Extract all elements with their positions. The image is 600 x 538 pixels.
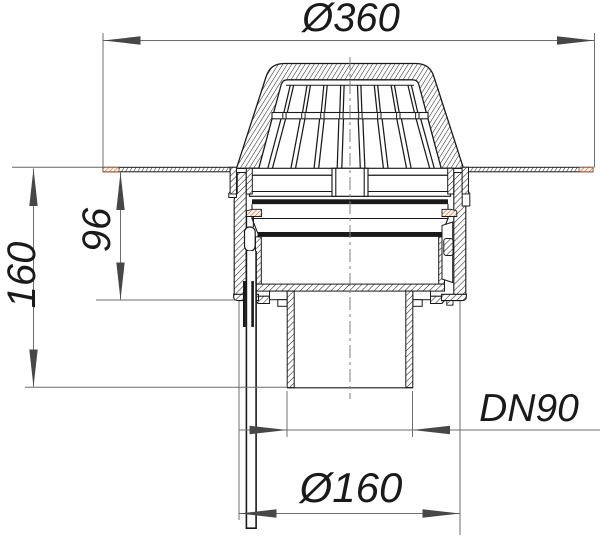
- svg-text:Ø360: Ø360: [300, 0, 400, 40]
- svg-text:96: 96: [75, 207, 119, 252]
- svg-text:DN90: DN90: [479, 387, 579, 430]
- svg-text:160: 160: [0, 242, 44, 309]
- svg-text:Ø160: Ø160: [298, 464, 403, 511]
